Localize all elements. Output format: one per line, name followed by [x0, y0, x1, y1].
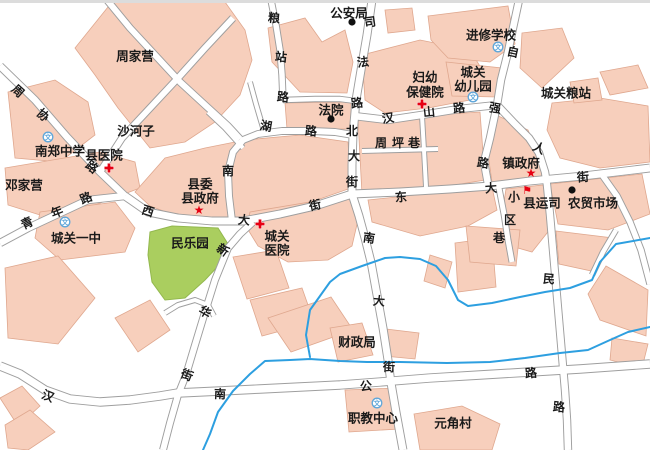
- place-label: 医院: [264, 242, 290, 257]
- road-label: 南: [214, 386, 227, 401]
- map-canvas[interactable]: ★★⚑文文文文文周协路青年路西大街东大街司法路北大街南大街汉山路自强路人民路小区…: [0, 0, 650, 450]
- road-label: 周: [375, 136, 387, 150]
- place-label: 进修学校: [466, 27, 517, 42]
- building-block: [385, 8, 415, 33]
- road-label: 街: [345, 174, 358, 189]
- road-label: 小: [508, 189, 520, 204]
- place-label: 幼儿园: [454, 78, 492, 93]
- road-label: 东: [394, 189, 407, 205]
- road-label: 大: [348, 148, 360, 163]
- road-label: 巷: [492, 230, 506, 245]
- road-label: 路: [524, 365, 538, 381]
- place-label: 元角村: [434, 415, 472, 430]
- school-icon-glyph: 文: [495, 43, 503, 52]
- place-label: 城关: [460, 64, 486, 79]
- road-label: 大: [237, 212, 250, 228]
- place-label: 县运司: [523, 196, 561, 210]
- road-label: 粮: [267, 10, 280, 26]
- road-label: 公: [359, 379, 372, 394]
- road-label: 民: [542, 272, 555, 287]
- road-label: 湖: [259, 117, 273, 134]
- road-label: 区: [504, 213, 516, 227]
- road-label: 大: [484, 180, 497, 196]
- road-label: 山: [422, 104, 436, 120]
- road-label: 南: [222, 163, 234, 178]
- place-label: 民乐园: [171, 235, 209, 250]
- road-label: 站: [274, 49, 287, 65]
- place-label: 邓家营: [5, 177, 43, 192]
- place-label: 县医院: [85, 147, 123, 162]
- place-label: 城关粮站: [541, 85, 592, 100]
- poi-dot-icon: [568, 186, 575, 193]
- road-label: 街: [575, 169, 589, 185]
- place-label: 镇政府: [502, 155, 540, 170]
- school-icon-glyph: 文: [470, 93, 478, 102]
- road-label: 路: [304, 123, 318, 139]
- school-icon-glyph: 文: [45, 133, 53, 142]
- place-label: 财政局: [337, 334, 376, 349]
- place-label: 农贸市场: [567, 195, 618, 210]
- school-icon-glyph: 文: [374, 399, 382, 408]
- building-block: [547, 98, 650, 168]
- place-label: 公安局: [330, 5, 368, 20]
- place-label: 城关: [264, 228, 290, 243]
- road-north-lane: [283, 99, 356, 101]
- place-label: 妇幼: [411, 69, 437, 84]
- road-label: 街: [382, 359, 396, 375]
- place-label: 保健院: [405, 84, 444, 99]
- flag-icon: ⚑: [522, 185, 532, 197]
- top-border: [0, 0, 650, 3]
- road-label: 南: [362, 229, 376, 246]
- place-label: 县政府: [181, 190, 219, 205]
- place-label: 法院: [318, 102, 344, 117]
- place-label: 职教中心: [348, 410, 399, 425]
- road-label: 法: [356, 53, 370, 70]
- place-label: 沙河子: [117, 123, 155, 138]
- road-label: 巷: [407, 135, 421, 150]
- road-label: 坪: [392, 136, 404, 150]
- place-label: 县委: [187, 176, 213, 191]
- city-street-map: ★★⚑文文文文文周协路青年路西大街东大街司法路北大街南大街汉山路自强路人民路小区…: [0, 0, 650, 450]
- road-label: 路: [276, 89, 290, 105]
- place-label: 周家营: [116, 48, 154, 63]
- place-label: 南郑中学: [35, 143, 86, 158]
- road-label: 大: [372, 293, 385, 309]
- road-label: 强: [488, 100, 502, 116]
- road-label: 北: [346, 123, 358, 138]
- place-label: 城关一中: [51, 230, 101, 245]
- road-label: 路: [552, 399, 566, 415]
- school-icon-glyph: 文: [62, 218, 70, 227]
